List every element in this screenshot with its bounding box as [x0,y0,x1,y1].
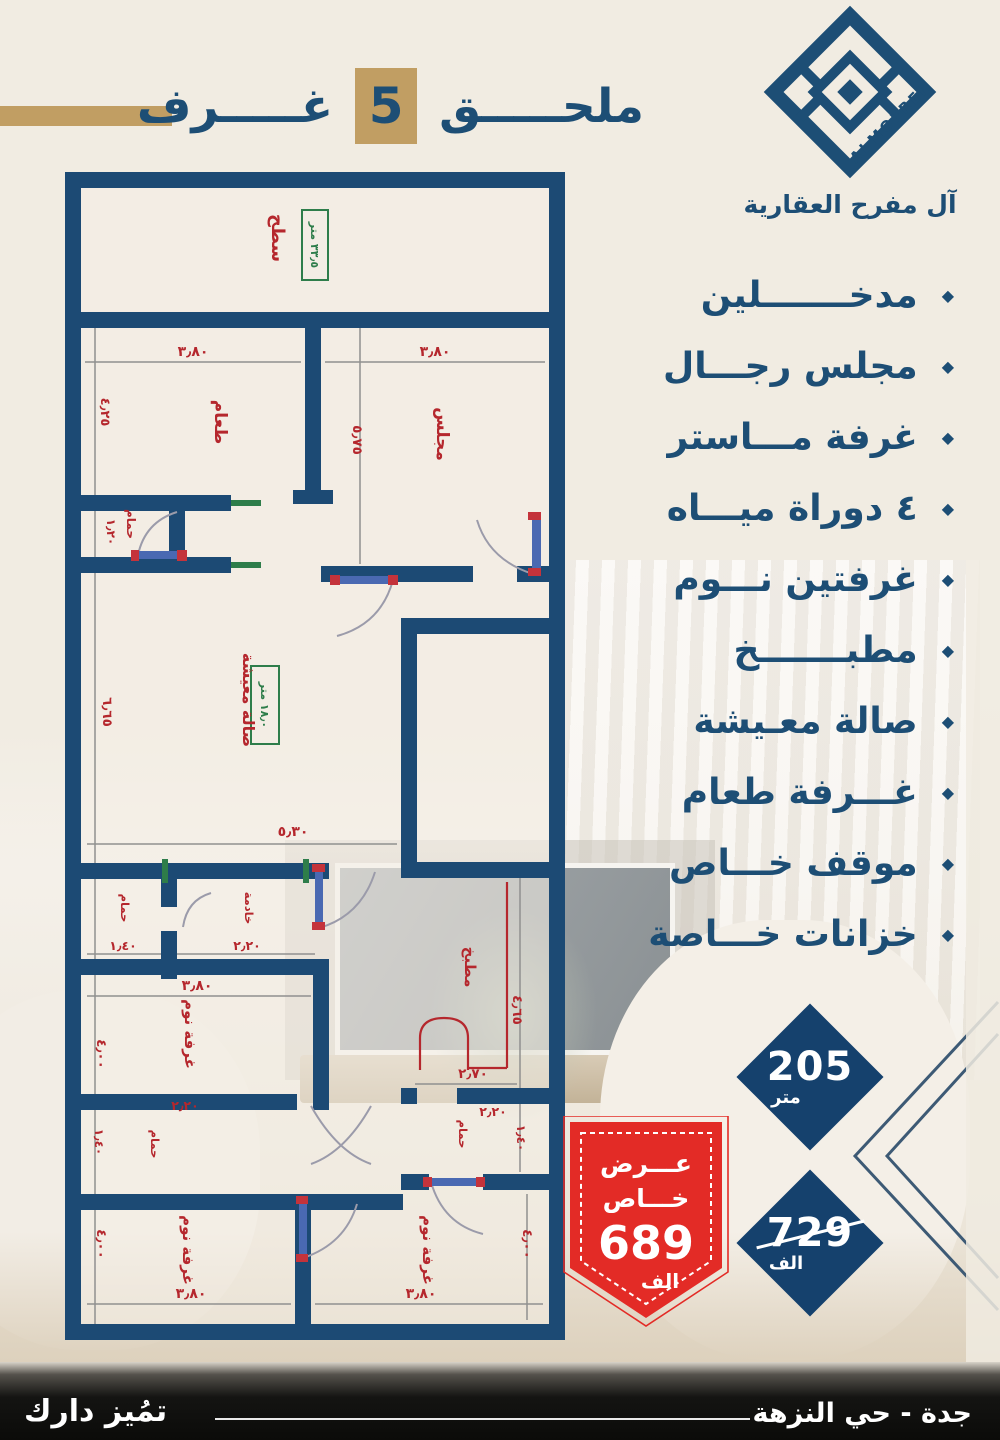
footer-bar: تمُيز دارك جدة - حي النزهة [0,1362,1000,1440]
offer-word2: خـــاص [603,1184,690,1213]
dim: ١٫٤٠ [514,1125,528,1151]
dim: ٤٫٠٠ [519,1229,535,1259]
old-price-badge: 729 الف [736,1169,883,1316]
title-word-rooms: غـــــرف [137,79,333,134]
room-label-living: صالة معيشة [239,653,258,747]
old-price-value: 729 [767,1213,854,1253]
old-price-unit: الف [769,1253,803,1274]
dim: ٢٫٧٠ [458,1066,488,1082]
dim: ٥٫٧٥ [349,425,365,455]
room-label-bath2: حمام [118,894,132,923]
dim: ٢٫٢٠ [171,1098,199,1113]
feature-label: غرفة مـــاستر [668,417,918,458]
dim: ٥٫٣٠ [278,824,309,840]
page-title: ملحـــــق 5 غـــــرف [137,68,644,144]
living-area-label: ١٨٫٠ متر [258,681,271,728]
feature-item: ◆غرفتين نـــوم [574,544,954,615]
feature-label: مجلس رجـــال [663,346,918,387]
room-label-bedroom1: غرفة نوم [181,999,199,1069]
dim: ١٫٢٠ [104,519,118,545]
room-label-roof: سطح [267,214,288,262]
area-unit: متر [771,1087,801,1108]
feature-item: ◆موقف خـــاص [574,828,954,899]
dim: ٣٫٨٠ [182,978,213,994]
feature-item: ◆مدخـــــــلين [574,260,954,331]
dim: ٤٫٠٠ [93,1039,109,1069]
bullet-diamond-icon: ◆ [942,286,954,305]
special-offer-badge: عـــرض خـــاص 689 الف [562,1116,730,1328]
feature-label: مدخـــــــلين [701,275,918,316]
area-badge: 205 متر [736,1003,883,1150]
feature-label: مطبـــــــخ [734,630,918,671]
footer-location: جدة - حي النزهة [753,1398,972,1429]
roof-area-label: ٣٣٫٥ متر [308,221,321,269]
room-label-majlis: مجلس [432,407,452,461]
logo-mark-icon: ALMOFREH [738,2,962,198]
title-number-badge: 5 [355,68,417,144]
right-edge-strip [966,560,1000,1362]
footer-brand: تمُيز دارك [24,1394,167,1429]
dim: ٤٫٠٠ [93,1229,109,1259]
room-label-bedroom2: غرفة نوم [179,1215,197,1285]
dim: ١٫٤٠ [109,938,137,953]
feature-item: ◆خزانات خـــاصة [574,899,954,970]
title-word-annex: ملحـــــق [439,79,644,134]
bullet-diamond-icon: ◆ [942,499,954,518]
feature-item: ◆مطبـــــــخ [574,615,954,686]
bullet-diamond-icon: ◆ [942,357,954,376]
feature-label: خزانات خـــاصة [648,914,917,955]
bullet-diamond-icon: ◆ [942,783,954,802]
dim: ١٫٤٠ [92,1129,106,1155]
feature-item: ◆صالة معـيشة [574,686,954,757]
dim: ٣٫٨٠ [176,1286,207,1302]
area-value: 205 [767,1047,854,1087]
feature-label: غرفتين نـــوم [673,559,917,600]
feature-label: صالة معـيشة [693,701,917,742]
company-logo: ALMOFREH آل مفرح العقارية [738,2,962,219]
room-label-kitchen: مطبخ [461,947,479,988]
room-label-bath1: حمام [123,509,138,539]
bullet-diamond-icon: ◆ [942,925,954,944]
room-label-bath4: حمام [456,1120,470,1149]
offer-word1: عـــرض [600,1149,692,1179]
floor-plan: ٣٣٫٥ متر ١٨٫٠ متر سطح طعام مجلس حمام صال… [65,172,565,1340]
feature-item: ◆غـــرفة طعام [574,757,954,828]
room-label-dining: طعام [210,400,230,444]
feature-label: غـــرفة طعام [682,772,918,813]
bullet-diamond-icon: ◆ [942,854,954,873]
feature-item: ◆مجلس رجـــال [574,331,954,402]
dim: ٤٫٢٥ [97,398,112,427]
feature-item: ◆غرفة مـــاستر [574,402,954,473]
dim: ٣٫٨٠ [420,344,451,360]
footer-divider-line [215,1418,750,1420]
offer-unit: الف [641,1269,679,1293]
bullet-diamond-icon: ◆ [942,570,954,589]
room-label-maid: خادمة [242,892,256,925]
bullet-diamond-icon: ◆ [942,428,954,447]
room-label-bedroom3: غرفة نوم [419,1215,437,1285]
feature-label: ٤ دوراة ميـــاه [667,488,918,529]
logo-brand-ar: آل مفرح العقارية [738,190,962,219]
bullet-diamond-icon: ◆ [942,641,954,660]
offer-value: 689 [598,1216,694,1270]
dim: ٣٫٨٠ [178,344,209,360]
dim: ٤٫٦٥ [509,995,525,1025]
features-list: ◆مدخـــــــلين ◆مجلس رجـــال ◆غرفة مـــا… [574,260,954,970]
feature-label: موقف خـــاص [669,843,918,884]
dim: ٦٫٦٥ [99,697,115,727]
dim: ٣٫٨٠ [406,1286,437,1302]
dim: ٢٫٢٠ [233,938,261,953]
feature-item: ◆٤ دوراة ميـــاه [574,473,954,544]
room-label-bath3: حمام [148,1130,162,1159]
dim: ٢٫٢٠ [479,1104,507,1119]
bullet-diamond-icon: ◆ [942,712,954,731]
